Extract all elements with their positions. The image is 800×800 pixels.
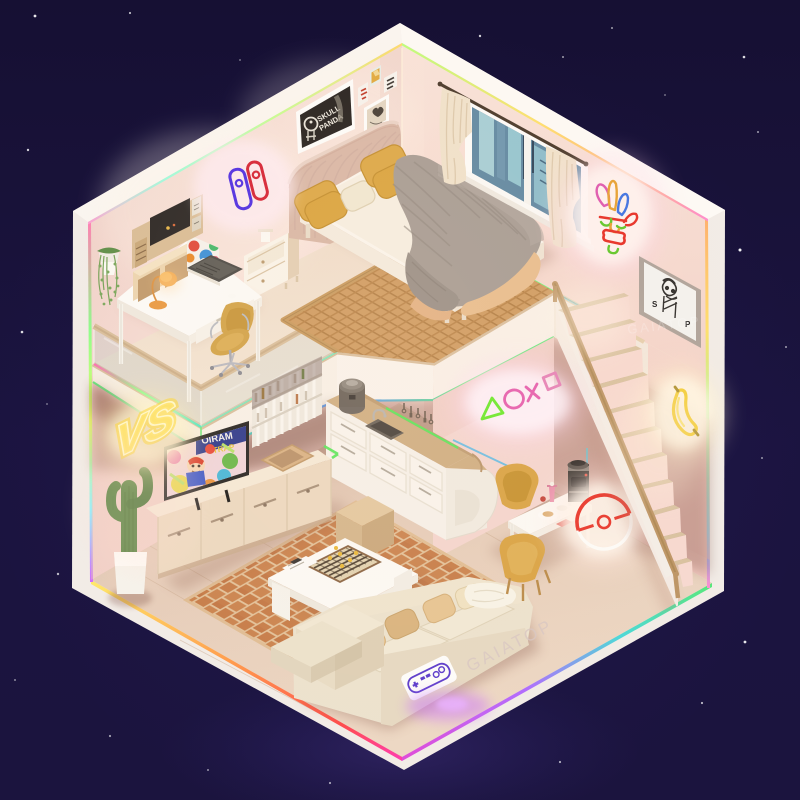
svg-text:S: S: [652, 300, 658, 309]
